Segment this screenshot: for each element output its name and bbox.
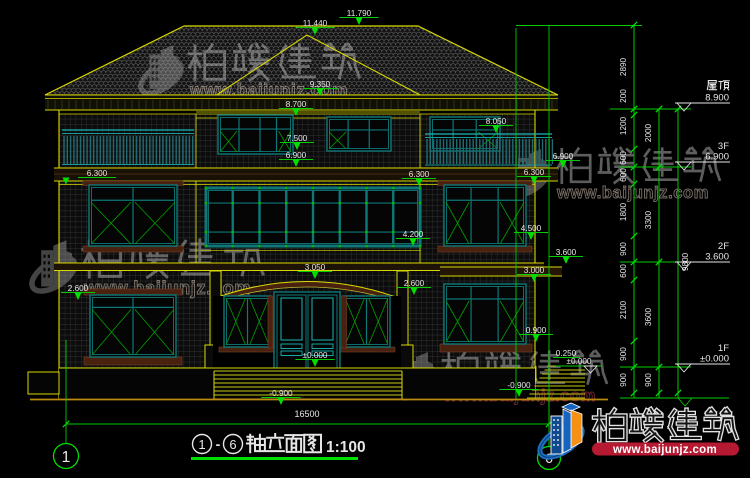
svg-text:600: 600 [619,168,628,182]
svg-text:±0.000: ±0.000 [303,351,328,360]
svg-text:www.baijunjz.com: www.baijunjz.com [612,444,717,456]
svg-text:900: 900 [619,242,628,256]
svg-text:6.300: 6.300 [409,170,430,179]
svg-text:900: 900 [619,373,628,387]
svg-text:8.700: 8.700 [286,100,307,109]
svg-text:2.600: 2.600 [68,284,89,293]
svg-text:1F: 1F [718,343,729,354]
svg-text:9.350: 9.350 [310,80,331,89]
svg-text:6.300: 6.300 [524,168,545,177]
svg-text:900: 900 [619,347,628,361]
svg-text:3600: 3600 [644,307,653,326]
svg-text:1: 1 [198,437,205,452]
svg-text:3.000: 3.000 [524,266,545,275]
svg-text:3F: 3F [718,141,729,152]
svg-text:8.050: 8.050 [486,117,507,126]
svg-text:2.600: 2.600 [404,279,425,288]
svg-text:4.200: 4.200 [403,230,424,239]
svg-text:2F: 2F [718,241,729,252]
svg-text:±0.000: ±0.000 [567,357,592,366]
svg-text:6.900: 6.900 [286,151,307,160]
svg-text:6.300: 6.300 [87,169,108,178]
svg-text:3.600: 3.600 [705,252,729,263]
svg-text:11.790: 11.790 [347,9,372,18]
svg-text:2100: 2100 [619,300,628,319]
svg-text:3300: 3300 [644,210,653,229]
svg-text:-0.900: -0.900 [269,389,293,398]
svg-text:11.440: 11.440 [303,19,328,28]
svg-text:4.500: 4.500 [521,224,542,233]
svg-text:1: 1 [62,449,71,466]
svg-text:2000: 2000 [644,123,653,142]
svg-text:6.900: 6.900 [553,152,574,161]
svg-text:1200: 1200 [619,116,628,135]
svg-text:1:100: 1:100 [326,439,366,456]
svg-text:600: 600 [619,264,628,278]
svg-text:900: 900 [644,373,653,387]
svg-text:3.600: 3.600 [556,248,577,257]
svg-text:2890: 2890 [619,57,628,76]
svg-text:16500: 16500 [294,409,319,419]
svg-text:600: 600 [619,151,628,165]
svg-text:www.baijunjz.com: www.baijunjz.com [556,184,709,202]
svg-text:±0.000: ±0.000 [700,354,729,365]
svg-text:7.500: 7.500 [287,134,308,143]
svg-text:200: 200 [619,89,628,103]
svg-text:-: - [216,436,221,452]
svg-text:6.900: 6.900 [705,152,729,163]
svg-text:0.900: 0.900 [526,326,547,335]
svg-text:3.050: 3.050 [305,263,326,272]
svg-text:6: 6 [229,437,236,452]
svg-text:1800: 1800 [619,202,628,221]
svg-text:8.900: 8.900 [705,93,729,104]
svg-text:-0.900: -0.900 [507,381,531,390]
